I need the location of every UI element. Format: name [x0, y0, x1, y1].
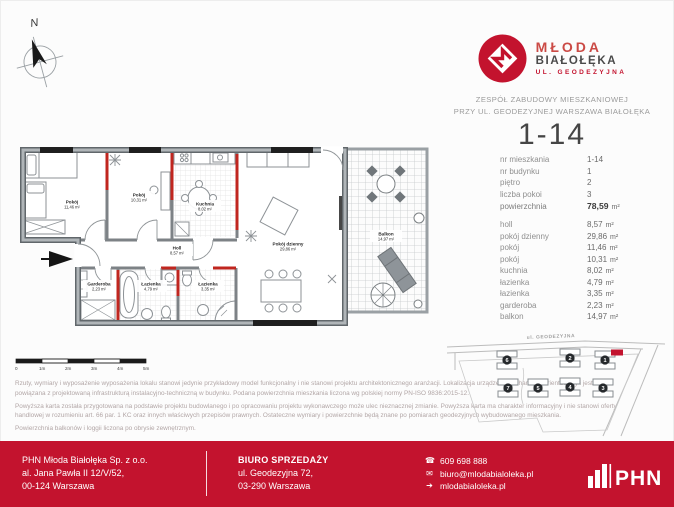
svg-text:3m: 3m	[91, 366, 98, 371]
detail-row: nr budynku 1	[500, 167, 668, 179]
building-7: 7	[498, 379, 518, 397]
svg-text:2: 2	[568, 356, 571, 362]
company-address-2: 00-124 Warszawa	[22, 480, 148, 493]
sales-office-address-2: 03-290 Warszawa	[238, 480, 329, 493]
scale-bar: 0 1m 2m 3m 4m 5m	[15, 355, 165, 375]
brand-name-line3: UL. GEODEZYJNA	[536, 70, 627, 77]
floorplan: Pokój 11,46 m² Pokój 10,31 m² Kuchnia 8,…	[15, 140, 430, 337]
svg-text:6: 6	[505, 358, 508, 364]
plant-icon	[109, 154, 121, 166]
room-row: łazienka 3,35m²	[500, 289, 668, 301]
svg-text:1m: 1m	[39, 366, 46, 371]
room-row: łazienka 4,79m²	[500, 278, 668, 290]
contact-info: ☎ 609 698 888 ✉ biuro@mlodabialoleka.pl …	[425, 455, 533, 493]
svg-text:29,86 m²: 29,86 m²	[280, 247, 297, 252]
room-row: kuchnia 8,02m²	[500, 266, 668, 278]
unit-details-table: nr mieszkania 1-14 nr budynku 1 piętro 2…	[500, 155, 668, 213]
dining-table	[261, 280, 301, 302]
website-row[interactable]: ➔ mlodabialoleka.pl	[425, 480, 533, 493]
brand-name-line1: MŁODA	[536, 40, 627, 55]
phone-icon: ☎	[425, 455, 434, 468]
plant-icon	[414, 213, 424, 223]
room-label-lazienka-1: Łazienka 4,79 m²	[135, 280, 167, 292]
detail-row: liczba pokoi 3	[500, 190, 668, 202]
project-tagline: ZESPÓŁ ZABUDOWY MIESZKANIOWEJ PRZY UL. G…	[430, 94, 674, 118]
brand-logo-mark	[478, 34, 527, 83]
svg-text:1: 1	[603, 358, 606, 364]
svg-text:3: 3	[601, 386, 604, 392]
building-2: 2	[560, 349, 580, 367]
brand-name-line2: BIAŁOŁĘKA	[536, 55, 627, 67]
sales-office-info: BIURO SPRZEDAŻY ul. Geodezyjna 72, 03-29…	[238, 454, 329, 493]
svg-text:5m: 5m	[143, 366, 150, 371]
building-3: 3	[593, 379, 613, 397]
apartment-card: N	[0, 0, 674, 507]
svg-text:2m: 2m	[65, 366, 72, 371]
room-label-balkon: Balkon 14,97 m²	[370, 230, 402, 242]
email-icon: ✉	[425, 468, 434, 481]
room-row: pokój 10,31m²	[500, 255, 668, 267]
plant-icon	[414, 300, 422, 308]
svg-text:4m: 4m	[117, 366, 124, 371]
svg-text:8,02 m²: 8,02 m²	[198, 207, 213, 212]
unit-location-marker	[611, 350, 623, 356]
room-label-kuchnia: Kuchnia 8,02 m²	[189, 200, 221, 212]
sales-office-title: BIURO SPRZEDAŻY	[238, 454, 329, 467]
sink	[198, 305, 209, 316]
footer-divider	[206, 451, 207, 496]
company-address-1: al. Jana Pawła II 12/V/52,	[22, 467, 148, 480]
room-row: holl 8,57m²	[500, 220, 668, 232]
compass-icon: N	[12, 12, 68, 96]
cursor-icon: ➔	[425, 480, 434, 493]
svg-text:2,23 m²: 2,23 m²	[92, 287, 107, 292]
compass-north-label: N	[29, 17, 39, 30]
site-map: ul. GEODEZYJNA 6 2 1 7 5	[445, 328, 670, 438]
svg-text:8,57 m²: 8,57 m²	[170, 251, 185, 256]
company-info: PHN Młoda Białołęka Sp. z o.o. al. Jana …	[22, 454, 148, 493]
toilet	[162, 306, 171, 318]
detail-row-area: powierzchnia 78,59m²	[500, 201, 668, 213]
phone-number[interactable]: 609 698 888	[440, 455, 487, 468]
footer: PHN Młoda Białołęka Sp. z o.o. al. Jana …	[0, 441, 674, 507]
building-6: 6	[497, 351, 517, 369]
svg-text:5: 5	[536, 386, 539, 392]
room-label-garderoba: Garderoba 2,23 m²	[83, 280, 115, 292]
room-label-pokoj-1: Pokój 11,46 m²	[56, 198, 88, 210]
email-row[interactable]: ✉ biuro@mlodabialoleka.pl	[425, 468, 533, 481]
phone-row[interactable]: ☎ 609 698 888	[425, 455, 533, 468]
svg-text:3,35 m²: 3,35 m²	[201, 287, 216, 292]
company-name: PHN Młoda Białołęka Sp. z o.o.	[22, 454, 148, 467]
building-4: 4	[560, 378, 580, 396]
toilet	[183, 274, 192, 286]
svg-text:10,31 m²: 10,31 m²	[131, 198, 148, 203]
sofa	[247, 151, 309, 167]
detail-row: piętro 2	[500, 178, 668, 190]
round-table	[371, 283, 395, 307]
sink	[142, 309, 153, 320]
building-5: 5	[528, 379, 548, 397]
svg-text:11,46 m²: 11,46 m²	[64, 205, 80, 210]
svg-text:14,97 m²: 14,97 m²	[378, 237, 395, 242]
website-url[interactable]: mlodabialoleka.pl	[440, 480, 506, 493]
room-row: pokój dzienny 29,86m²	[500, 232, 668, 244]
room-label-holl: Holl 8,57 m²	[161, 244, 193, 256]
phn-logo: PHN	[586, 456, 664, 494]
email-address[interactable]: biuro@mlodabialoleka.pl	[440, 468, 533, 481]
svg-text:7: 7	[506, 386, 509, 392]
info-panel: MŁODA BIAŁOŁĘKA UL. GEODEZYJNA ZESPÓŁ ZA…	[430, 0, 674, 441]
room-label-pokoj-2: Pokój 10,31 m²	[123, 191, 155, 203]
entrance-arrow-icon	[41, 251, 73, 267]
brand-logo: MŁODA BIAŁOŁĘKA UL. GEODEZYJNA	[430, 34, 674, 83]
plant-icon	[245, 230, 257, 242]
svg-text:0: 0	[15, 366, 18, 371]
unit-number: 1-14	[430, 118, 674, 152]
sales-office-address-1: ul. Geodezyjna 72,	[238, 467, 329, 480]
room-row: garderoba 2,23m²	[500, 301, 668, 313]
compass: N	[12, 12, 68, 96]
room-label-lazienka-2: Łazienka 3,35 m²	[192, 280, 224, 292]
street-label: ul. GEODEZYJNA	[527, 333, 576, 341]
room-areas-table: holl 8,57m² pokój dzienny 29,86m² pokój …	[500, 220, 668, 324]
detail-row: nr mieszkania 1-14	[500, 155, 668, 167]
room-row: pokój 11,46m²	[500, 243, 668, 255]
room-row: balkon 14,97m²	[500, 312, 668, 324]
room-label-pokoj-dzienny: Pokój dzienny 29,86 m²	[269, 240, 307, 252]
phn-logo-text: PHN	[615, 467, 662, 490]
svg-text:4,79 m²: 4,79 m²	[144, 287, 159, 292]
